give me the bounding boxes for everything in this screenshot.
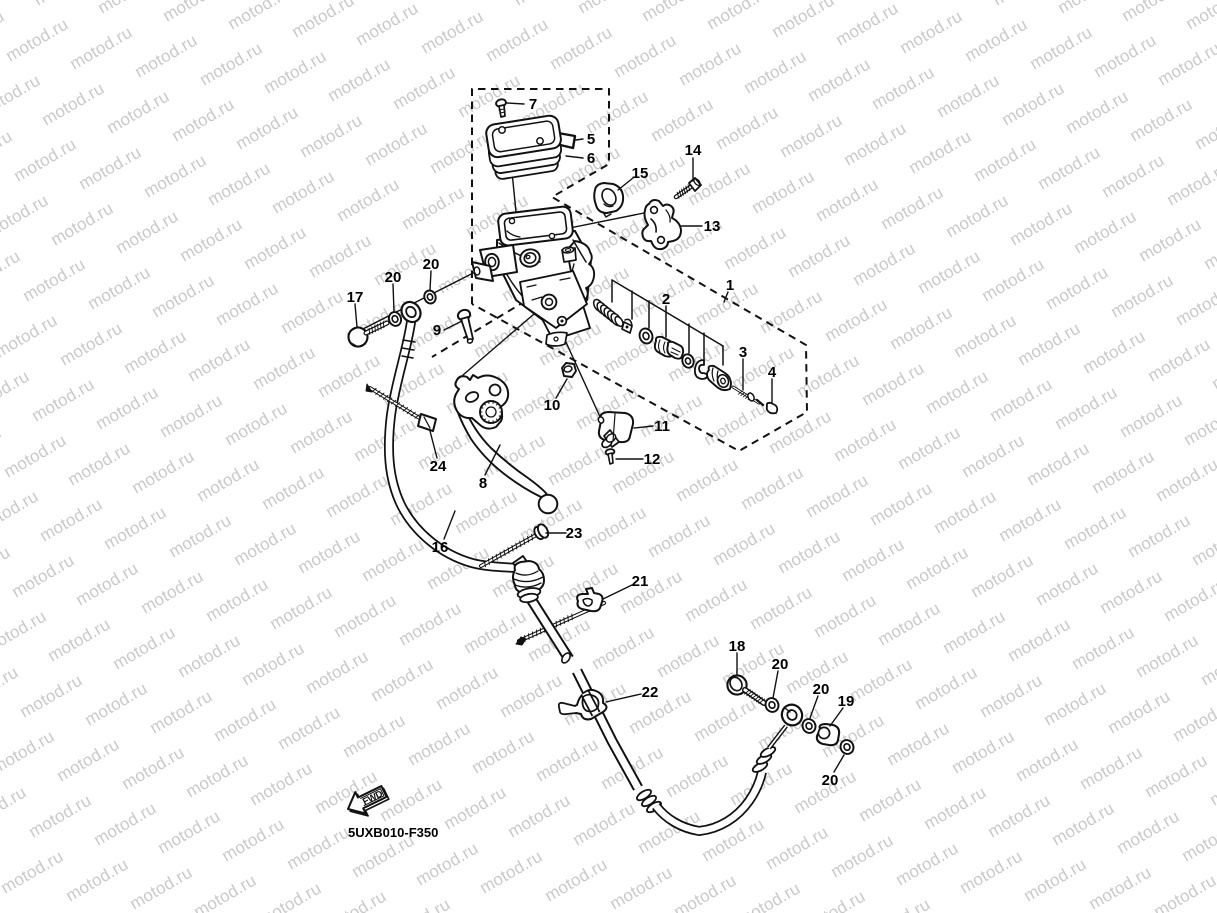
svg-text:5UXB010-F350: 5UXB010-F350 bbox=[348, 825, 438, 840]
svg-text:7: 7 bbox=[529, 96, 537, 113]
svg-text:23: 23 bbox=[566, 525, 583, 542]
svg-text:5: 5 bbox=[587, 131, 595, 148]
svg-text:12: 12 bbox=[644, 451, 661, 468]
svg-text:1: 1 bbox=[726, 277, 734, 294]
svg-text:20: 20 bbox=[813, 681, 830, 698]
svg-text:9: 9 bbox=[433, 322, 441, 339]
svg-text:21: 21 bbox=[632, 573, 649, 590]
svg-text:2: 2 bbox=[662, 291, 670, 308]
svg-text:10: 10 bbox=[544, 397, 561, 414]
svg-text:16: 16 bbox=[432, 539, 449, 556]
svg-text:20: 20 bbox=[772, 656, 789, 673]
svg-text:15: 15 bbox=[632, 165, 649, 182]
svg-text:8: 8 bbox=[479, 475, 487, 492]
svg-text:13: 13 bbox=[704, 218, 721, 235]
svg-text:14: 14 bbox=[685, 142, 702, 159]
svg-text:22: 22 bbox=[642, 684, 659, 701]
svg-text:24: 24 bbox=[430, 458, 447, 475]
svg-text:19: 19 bbox=[838, 693, 855, 710]
svg-text:6: 6 bbox=[587, 150, 595, 167]
svg-text:20: 20 bbox=[822, 772, 839, 789]
svg-text:11: 11 bbox=[654, 418, 670, 435]
